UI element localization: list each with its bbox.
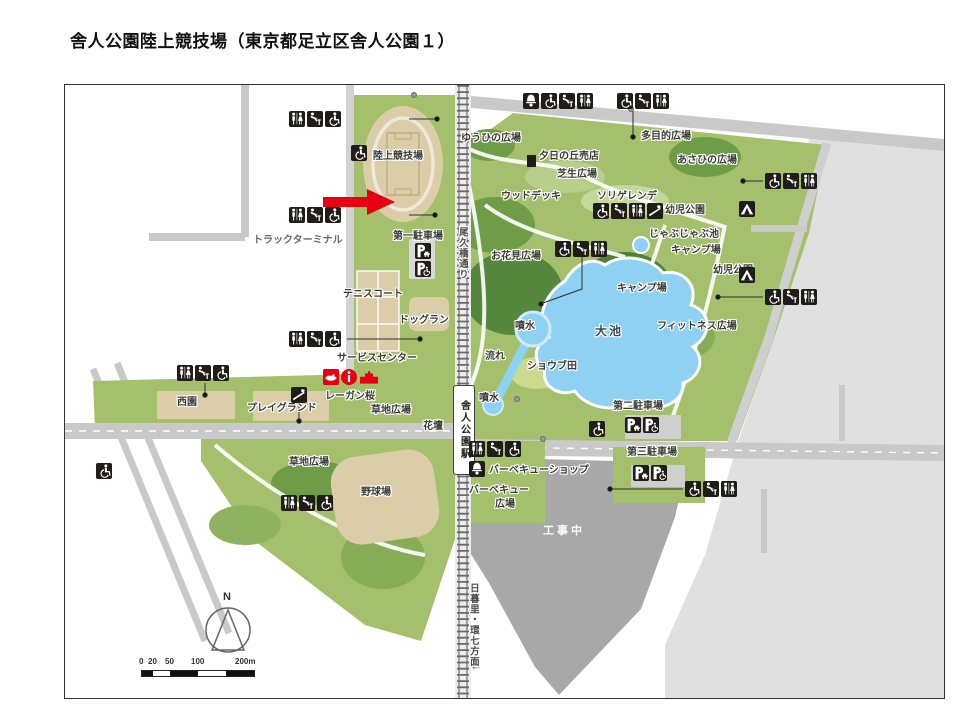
map-label: 夕日の丘売店 bbox=[539, 151, 599, 163]
map-label: ショウブ田 bbox=[527, 361, 577, 373]
facility-marker bbox=[765, 173, 817, 189]
toilet-icon bbox=[577, 93, 593, 109]
toilet-icon bbox=[177, 365, 193, 381]
map-label: 工事中 bbox=[543, 525, 585, 538]
water-fountain-icon bbox=[487, 441, 503, 457]
map-label: 噴水 bbox=[515, 321, 535, 333]
tent-icon bbox=[739, 267, 755, 283]
water-fountain-icon bbox=[783, 289, 799, 305]
toilet-icon bbox=[591, 241, 607, 257]
water-fountain-icon bbox=[559, 93, 575, 109]
map-overlay: 舎人公園駅 N 0 20 50 100 200m 陸上競技場ゆうひの広場夕日の丘… bbox=[65, 85, 944, 698]
tent-icon bbox=[739, 201, 755, 217]
information-icon bbox=[341, 369, 357, 385]
accessible-toilet-icon bbox=[765, 289, 781, 305]
facility-marker bbox=[739, 201, 755, 217]
map-label: 花壇 bbox=[423, 421, 443, 433]
map-label: 大池 bbox=[595, 325, 623, 339]
shop-icon bbox=[523, 93, 539, 109]
park-emblem-icon bbox=[323, 369, 339, 385]
map-label: レーガン桜 bbox=[325, 391, 375, 403]
map-label: 広場 bbox=[495, 499, 515, 511]
scale-tick: 100 bbox=[191, 657, 204, 666]
parking-icon bbox=[625, 417, 641, 433]
water-fountain-icon bbox=[611, 203, 627, 219]
map-label: 噴水 bbox=[479, 393, 499, 405]
map-label: ゆうひの広場 bbox=[461, 133, 521, 145]
service-building-icon bbox=[359, 369, 379, 385]
scale-bar-segments bbox=[141, 670, 255, 677]
map-label: 日暮里・環七方面 bbox=[467, 583, 478, 667]
facility-marker bbox=[633, 465, 667, 481]
map-label: 第一駐車場 bbox=[393, 231, 443, 243]
accessible-toilet-icon bbox=[617, 93, 633, 109]
toilet-icon bbox=[469, 441, 485, 457]
map-label: ドッグラン bbox=[399, 315, 449, 327]
scale-tick: 200m bbox=[235, 657, 255, 666]
map-label: お花見広場 bbox=[491, 251, 541, 263]
map-label: テニスコート bbox=[343, 289, 403, 301]
playground-icon bbox=[291, 387, 307, 403]
map-label: じゃぶじゃぶ池 bbox=[649, 229, 719, 241]
map-label: サービスセンター bbox=[337, 353, 417, 365]
scale-tick: 0 bbox=[139, 657, 143, 666]
accessible-toilet-icon bbox=[541, 93, 557, 109]
map-label: ウッドデッキ bbox=[501, 191, 561, 203]
facility-marker bbox=[289, 111, 341, 127]
accessible-toilet-icon bbox=[317, 495, 333, 511]
map-label: ↓ bbox=[469, 665, 483, 672]
accessible-toilet-icon bbox=[351, 145, 367, 161]
water-fountain-icon bbox=[307, 331, 323, 347]
compass-north-label: N bbox=[223, 591, 231, 603]
map-label: 尾久橋通り bbox=[456, 227, 467, 280]
toilet-icon bbox=[721, 481, 737, 497]
accessible-parking-icon bbox=[643, 417, 659, 433]
facility-marker bbox=[177, 365, 229, 381]
facility-marker bbox=[415, 243, 431, 277]
map-label: 草地広場 bbox=[371, 405, 411, 417]
accessible-toilet-icon bbox=[765, 173, 781, 189]
accessible-toilet-icon bbox=[685, 481, 701, 497]
page-title: 舎人公園陸上競技場（東京都足立区舎人公園１） bbox=[70, 27, 455, 52]
accessible-toilet-icon bbox=[505, 441, 521, 457]
map-label: 西園 bbox=[177, 397, 197, 409]
map-label: 流れ bbox=[485, 351, 505, 363]
facility-marker bbox=[291, 387, 307, 403]
toilet-icon bbox=[801, 289, 817, 305]
water-fountain-icon bbox=[783, 173, 799, 189]
toilet-icon bbox=[801, 173, 817, 189]
water-fountain-icon bbox=[573, 241, 589, 257]
map-label: 幼児公園 bbox=[665, 205, 705, 217]
accessible-parking-icon bbox=[415, 261, 431, 277]
toilet-icon bbox=[289, 207, 305, 223]
slope-icon bbox=[647, 203, 663, 219]
facility-marker bbox=[685, 481, 737, 497]
park-map: 舎人公園駅 N 0 20 50 100 200m 陸上競技場ゆうひの広場夕日の丘… bbox=[64, 84, 945, 699]
map-label: 第二駐車場 bbox=[613, 401, 663, 413]
water-fountain-icon bbox=[299, 495, 315, 511]
facility-marker bbox=[523, 93, 593, 109]
facility-marker bbox=[289, 207, 341, 223]
accessible-toilet-icon bbox=[213, 365, 229, 381]
map-label: トラックターミナル bbox=[253, 235, 343, 247]
map-label: ソリゲレンデ bbox=[597, 191, 657, 203]
map-label: 芝生広場 bbox=[557, 169, 597, 181]
accessible-toilet-icon bbox=[555, 241, 571, 257]
toilet-icon bbox=[629, 203, 645, 219]
facility-marker bbox=[625, 417, 659, 433]
facility-marker bbox=[555, 241, 607, 257]
facility-marker bbox=[96, 463, 112, 479]
parking-icon bbox=[415, 243, 431, 259]
water-fountain-icon bbox=[307, 207, 323, 223]
facility-marker bbox=[351, 145, 367, 161]
water-fountain-icon bbox=[307, 111, 323, 127]
map-label: 草地広場 bbox=[289, 457, 329, 469]
map-label: プレイグランド bbox=[247, 403, 317, 415]
map-label: 多目的広場 bbox=[641, 131, 691, 143]
toilet-icon bbox=[289, 331, 305, 347]
map-label: 陸上競技場 bbox=[373, 151, 423, 163]
bbq-shop-icon bbox=[469, 461, 485, 477]
accessible-toilet-icon bbox=[593, 203, 609, 219]
facility-marker bbox=[289, 331, 341, 347]
facility-marker bbox=[765, 289, 817, 305]
map-label: あさひの広場 bbox=[677, 155, 737, 167]
map-label: キャンプ場 bbox=[671, 245, 721, 257]
scale-tick: 50 bbox=[165, 657, 174, 666]
map-label: 野球場 bbox=[361, 487, 391, 499]
toilet-icon bbox=[281, 495, 297, 511]
map-label: キャンプ場 bbox=[617, 283, 667, 295]
facility-marker bbox=[469, 461, 485, 477]
map-label: 第三駐車場 bbox=[627, 447, 677, 459]
map-label: フィットネス広場 bbox=[657, 321, 737, 333]
accessible-toilet-icon bbox=[325, 331, 341, 347]
facility-marker bbox=[617, 93, 669, 109]
water-fountain-icon bbox=[635, 93, 651, 109]
accessible-toilet-icon bbox=[325, 207, 341, 223]
accessible-toilet-icon bbox=[589, 421, 605, 437]
scale-tick: 20 bbox=[148, 657, 157, 666]
scale-bar: 0 20 50 100 200m bbox=[139, 657, 269, 685]
facility-marker bbox=[739, 267, 755, 283]
facility-marker bbox=[281, 495, 333, 511]
facility-marker bbox=[593, 203, 663, 219]
facility-marker bbox=[323, 369, 379, 385]
water-fountain-icon bbox=[195, 365, 211, 381]
water-fountain-icon bbox=[703, 481, 719, 497]
facility-marker bbox=[469, 441, 521, 457]
accessible-parking-icon bbox=[651, 465, 667, 481]
facility-marker bbox=[589, 421, 605, 437]
accessible-toilet-icon bbox=[96, 463, 112, 479]
parking-icon bbox=[633, 465, 649, 481]
accessible-toilet-icon bbox=[325, 111, 341, 127]
toilet-icon bbox=[289, 111, 305, 127]
map-label: バーベキュー bbox=[469, 485, 529, 497]
toilet-icon bbox=[653, 93, 669, 109]
map-label: バーベキューショップ bbox=[489, 465, 589, 477]
